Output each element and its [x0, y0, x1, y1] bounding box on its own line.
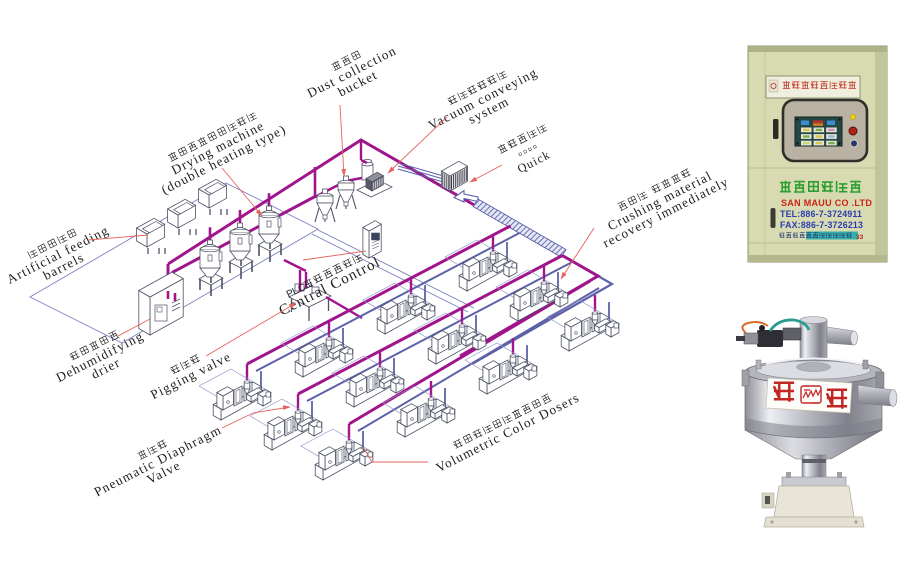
- svg-text:Vacuum conveying: Vacuum conveying: [426, 64, 540, 132]
- svg-text:Pneumatic Diaphragm: Pneumatic Diaphragm: [92, 422, 225, 499]
- svg-text:33: 33: [856, 234, 864, 241]
- svg-text:TEL:886-7-3724911: TEL:886-7-3724911: [780, 209, 862, 219]
- svg-text:SAN MAUU CO .LTD: SAN MAUU CO .LTD: [781, 198, 872, 208]
- svg-text:FAX:886-7-3726213: FAX:886-7-3726213: [780, 220, 863, 230]
- svg-text:Volumetric Color Dosers: Volumetric Color Dosers: [433, 390, 582, 476]
